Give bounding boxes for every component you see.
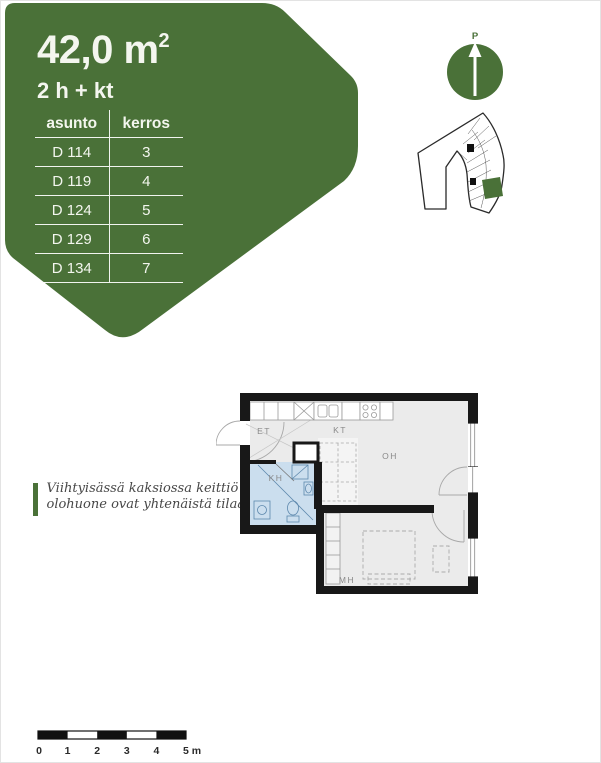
table-row: D 119 4 xyxy=(35,167,183,196)
room-label-bedroom: MH xyxy=(339,575,355,585)
floor-cell: 7 xyxy=(110,254,184,282)
floor-areas xyxy=(250,401,468,586)
scale-label-5m: 5 m xyxy=(183,745,201,757)
room-label-entry: ET xyxy=(257,426,271,436)
area-value: 42,0 m xyxy=(37,28,159,72)
living-room-window xyxy=(468,423,478,467)
floorplan-page: 42,0 m2 2 h + kt asunto kerros D 114 3 D… xyxy=(0,0,601,763)
bedroom-wardrobe xyxy=(326,513,340,584)
room-label-living: OH xyxy=(382,451,398,461)
building-outline xyxy=(418,113,504,213)
stair-core xyxy=(467,144,474,152)
table-row: D 114 3 xyxy=(35,138,183,167)
entrance-door-arc xyxy=(216,421,240,445)
scale-label-1: 1 xyxy=(65,745,71,757)
room-label-bath: KH xyxy=(269,473,284,483)
scale-label-4: 4 xyxy=(153,745,159,757)
table-header-apartment: asunto xyxy=(35,110,110,137)
apartment-cell: D 124 xyxy=(35,196,110,224)
floor-cell: 6 xyxy=(110,225,184,253)
floor-plan: ET KT OH KH MH xyxy=(216,386,480,622)
duct-shaft xyxy=(294,443,318,462)
bedroom-window xyxy=(468,538,478,577)
bathroom-floor xyxy=(250,462,316,525)
floor-cell: 4 xyxy=(110,167,184,195)
highlighted-apartment xyxy=(482,177,503,199)
scale-label-0: 0 xyxy=(36,745,42,757)
hall-closets xyxy=(250,402,294,420)
apartment-cell: D 114 xyxy=(35,138,110,166)
floor-cell: 3 xyxy=(110,138,184,166)
balcony-door-opening xyxy=(468,467,478,493)
scale-bar: 0 1 2 3 4 5 m xyxy=(36,723,211,761)
site-plan xyxy=(410,108,522,228)
scale-label-3: 3 xyxy=(124,745,130,757)
table-header-floor: kerros xyxy=(110,110,184,137)
stair-core xyxy=(470,178,476,185)
apartment-cell: D 119 xyxy=(35,167,110,195)
apartment-floor-table: asunto kerros D 114 3 D 119 4 D 124 5 D … xyxy=(35,110,183,283)
compass-icon: P xyxy=(440,26,510,104)
apartment-type: 2 h + kt xyxy=(37,78,113,104)
table-row: D 129 6 xyxy=(35,225,183,254)
table-row: D 124 5 xyxy=(35,196,183,225)
area-superscript: 2 xyxy=(159,30,170,52)
table-row: D 134 7 xyxy=(35,254,183,283)
area-title: 42,0 m2 xyxy=(37,28,169,73)
apartment-cell: D 134 xyxy=(35,254,110,282)
kitchen-fixtures xyxy=(250,402,393,420)
stove-unit xyxy=(360,402,380,420)
compass-north-label: P xyxy=(472,31,479,42)
note-accent-bar xyxy=(33,483,38,516)
apartment-cell: D 129 xyxy=(35,225,110,253)
counter-unit xyxy=(342,402,360,420)
scale-bar-labels: 0 1 2 3 4 5 m xyxy=(36,745,201,757)
table-header-row: asunto kerros xyxy=(35,110,183,138)
floor-cell: 5 xyxy=(110,196,184,224)
scale-label-2: 2 xyxy=(94,745,100,757)
room-label-kitchen: KT xyxy=(333,425,347,435)
